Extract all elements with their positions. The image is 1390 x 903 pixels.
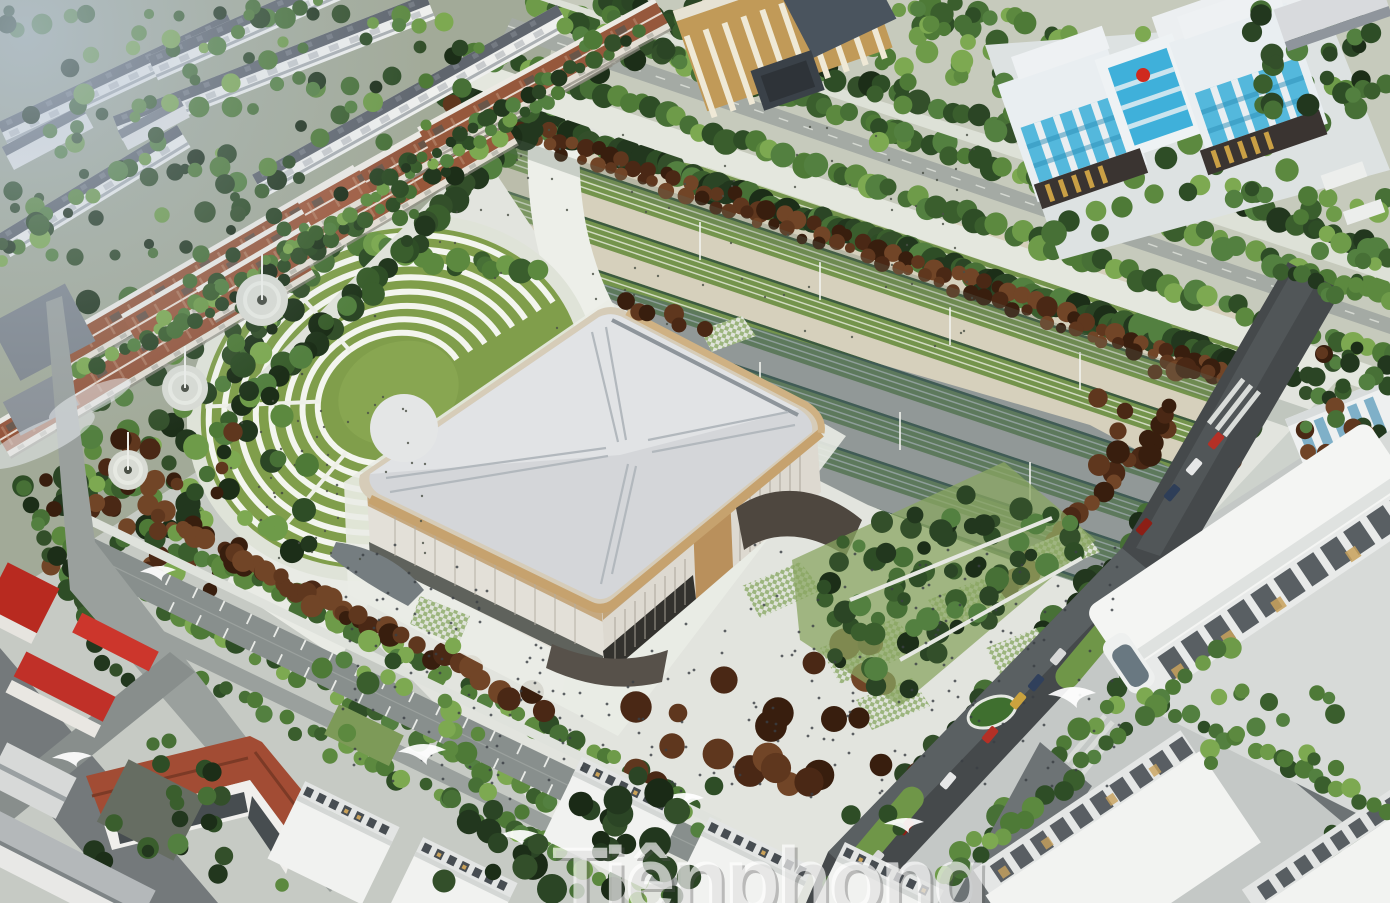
svg-text:Tiênphong: Tiênphong bbox=[552, 829, 984, 903]
